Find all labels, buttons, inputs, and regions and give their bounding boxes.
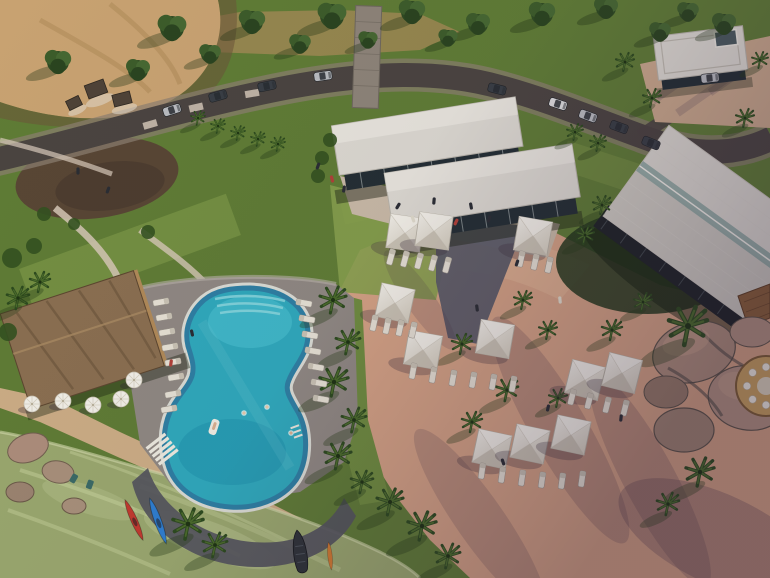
dusk-overlay bbox=[0, 0, 770, 578]
resort-aerial-render bbox=[0, 0, 770, 578]
